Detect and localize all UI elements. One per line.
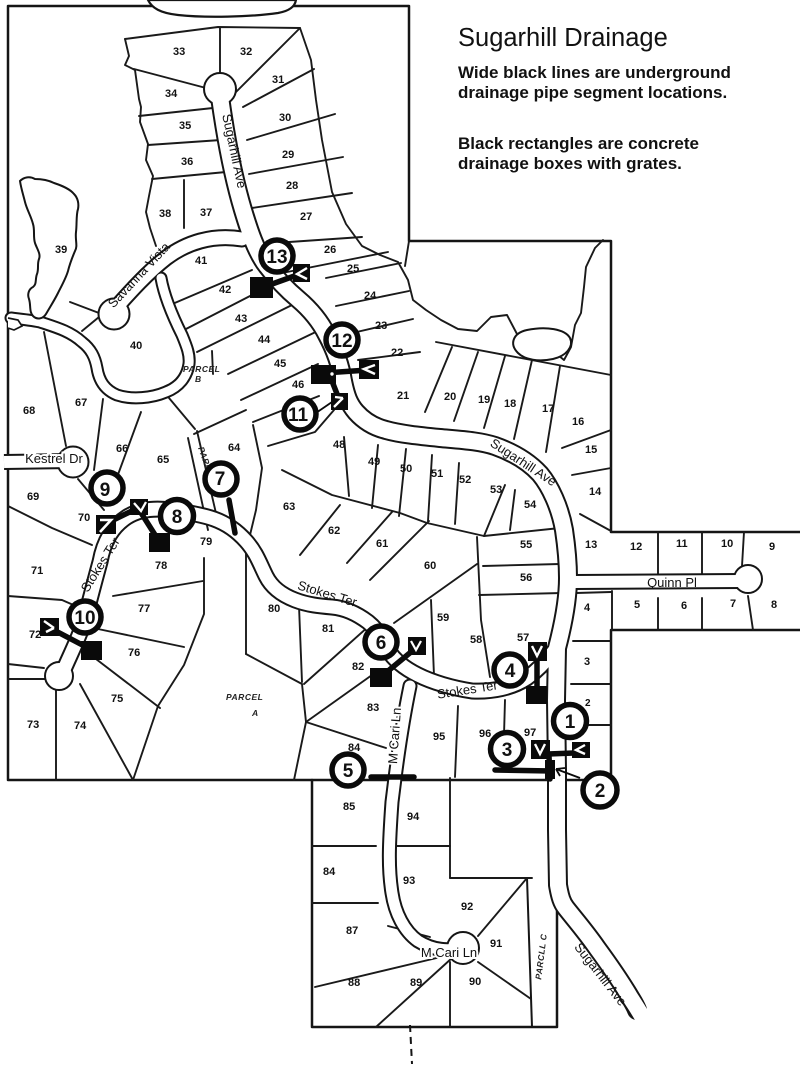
svg-text:48: 48 xyxy=(333,439,345,451)
svg-text:Wide black lines are undergrou: Wide black lines are underground xyxy=(458,63,731,82)
svg-text:85: 85 xyxy=(343,801,355,813)
svg-text:9: 9 xyxy=(100,480,111,501)
svg-text:13: 13 xyxy=(585,539,597,551)
svg-text:49: 49 xyxy=(368,456,380,468)
svg-text:76: 76 xyxy=(128,647,140,659)
svg-text:5: 5 xyxy=(343,761,354,782)
svg-text:2: 2 xyxy=(595,781,606,802)
svg-text:26: 26 xyxy=(324,244,336,256)
svg-text:6: 6 xyxy=(681,600,687,612)
svg-text:68: 68 xyxy=(23,405,35,417)
svg-text:6: 6 xyxy=(376,633,387,654)
svg-text:11: 11 xyxy=(676,538,688,550)
svg-text:84: 84 xyxy=(323,866,336,878)
svg-text:7: 7 xyxy=(215,469,226,490)
svg-text:93: 93 xyxy=(403,875,415,887)
svg-text:29: 29 xyxy=(282,149,294,161)
svg-text:25: 25 xyxy=(347,263,359,275)
svg-text:B: B xyxy=(195,374,202,384)
svg-text:73: 73 xyxy=(27,719,39,731)
svg-text:69: 69 xyxy=(27,491,39,503)
svg-text:71: 71 xyxy=(31,565,43,577)
svg-text:22: 22 xyxy=(391,347,403,359)
svg-text:83: 83 xyxy=(367,702,379,714)
svg-text:32: 32 xyxy=(240,46,252,58)
svg-text:3: 3 xyxy=(502,740,513,761)
svg-text:drainage pipe segment location: drainage pipe segment locations. xyxy=(458,83,727,102)
svg-text:90: 90 xyxy=(469,976,481,988)
svg-text:44: 44 xyxy=(258,334,271,346)
svg-text:70: 70 xyxy=(78,512,90,524)
svg-text:19: 19 xyxy=(478,394,490,406)
svg-text:60: 60 xyxy=(424,560,436,572)
svg-text:7: 7 xyxy=(730,598,736,610)
svg-text:92: 92 xyxy=(461,901,473,913)
svg-text:52: 52 xyxy=(459,474,471,486)
svg-text:Kestrel Dr: Kestrel Dr xyxy=(25,451,83,466)
svg-text:4: 4 xyxy=(584,602,591,614)
svg-text:11: 11 xyxy=(288,405,309,426)
svg-text:89: 89 xyxy=(410,977,422,989)
svg-text:Black rectangles are concrete: Black rectangles are concrete xyxy=(458,134,699,153)
svg-text:81: 81 xyxy=(322,623,334,635)
svg-text:9: 9 xyxy=(769,541,775,553)
svg-text:63: 63 xyxy=(283,501,295,513)
svg-text:24: 24 xyxy=(364,290,377,302)
svg-text:28: 28 xyxy=(286,180,298,192)
svg-text:2: 2 xyxy=(585,698,591,709)
svg-text:12: 12 xyxy=(630,541,642,553)
svg-text:drainage boxes with grates.: drainage boxes with grates. xyxy=(458,154,682,173)
svg-text:37: 37 xyxy=(200,207,212,219)
svg-text:54: 54 xyxy=(524,499,537,511)
svg-text:31: 31 xyxy=(272,74,284,86)
svg-text:8: 8 xyxy=(172,507,183,528)
svg-text:55: 55 xyxy=(520,539,532,551)
svg-text:38: 38 xyxy=(159,208,171,220)
svg-text:PARCEL: PARCEL xyxy=(183,364,220,374)
svg-text:79: 79 xyxy=(200,536,212,548)
svg-text:30: 30 xyxy=(279,112,291,124)
svg-text:59: 59 xyxy=(437,612,449,624)
svg-text:66: 66 xyxy=(116,443,128,455)
svg-text:27: 27 xyxy=(300,211,312,223)
svg-text:80: 80 xyxy=(268,603,280,615)
svg-text:13: 13 xyxy=(266,247,287,268)
svg-text:Sugarhill Drainage: Sugarhill Drainage xyxy=(458,24,668,52)
svg-text:35: 35 xyxy=(179,120,191,132)
svg-text:Quinn Pl: Quinn Pl xyxy=(647,575,697,590)
svg-text:62: 62 xyxy=(328,525,340,537)
svg-text:82: 82 xyxy=(352,661,364,673)
svg-text:3: 3 xyxy=(584,656,590,668)
svg-text:97: 97 xyxy=(524,727,536,739)
svg-text:17: 17 xyxy=(542,403,554,415)
svg-text:1: 1 xyxy=(565,712,576,733)
svg-text:40: 40 xyxy=(130,340,142,352)
svg-text:67: 67 xyxy=(75,397,87,409)
svg-text:91: 91 xyxy=(490,938,502,950)
svg-text:57: 57 xyxy=(517,632,529,644)
svg-text:12: 12 xyxy=(331,331,352,352)
svg-text:87: 87 xyxy=(346,925,358,937)
svg-text:58: 58 xyxy=(470,634,482,646)
svg-text:34: 34 xyxy=(165,88,178,100)
svg-text:46: 46 xyxy=(292,379,304,391)
svg-text:45: 45 xyxy=(274,358,286,370)
svg-text:78: 78 xyxy=(155,560,167,572)
svg-text:5: 5 xyxy=(634,599,640,611)
svg-text:15: 15 xyxy=(585,444,597,456)
svg-text:88: 88 xyxy=(348,977,360,989)
svg-text:PARCEL: PARCEL xyxy=(226,692,263,702)
svg-text:A: A xyxy=(251,708,259,718)
svg-text:64: 64 xyxy=(228,442,241,454)
svg-text:16: 16 xyxy=(572,416,584,428)
svg-text:77: 77 xyxy=(138,603,150,615)
svg-text:41: 41 xyxy=(195,255,207,267)
svg-text:23: 23 xyxy=(375,320,387,332)
svg-text:94: 94 xyxy=(407,811,420,823)
svg-text:43: 43 xyxy=(235,313,247,325)
svg-text:51: 51 xyxy=(431,468,443,480)
svg-text:75: 75 xyxy=(111,693,123,705)
svg-text:36: 36 xyxy=(181,156,193,168)
svg-text:96: 96 xyxy=(479,728,491,740)
svg-text:M Cari Ln: M Cari Ln xyxy=(421,945,477,960)
svg-text:74: 74 xyxy=(74,720,87,732)
svg-text:95: 95 xyxy=(433,731,445,743)
svg-text:65: 65 xyxy=(157,454,169,466)
svg-text:72: 72 xyxy=(29,629,41,641)
svg-text:53: 53 xyxy=(490,484,502,496)
svg-text:14: 14 xyxy=(589,486,602,498)
svg-text:4: 4 xyxy=(505,661,516,682)
svg-text:33: 33 xyxy=(173,46,185,58)
svg-text:18: 18 xyxy=(504,398,516,410)
svg-text:10: 10 xyxy=(721,538,733,550)
svg-text:61: 61 xyxy=(376,538,388,550)
svg-text:56: 56 xyxy=(520,572,532,584)
svg-text:39: 39 xyxy=(55,244,67,256)
svg-text:10: 10 xyxy=(74,608,95,629)
svg-text:42: 42 xyxy=(219,284,231,296)
svg-text:21: 21 xyxy=(397,390,409,402)
svg-text:8: 8 xyxy=(771,599,777,611)
svg-text:50: 50 xyxy=(400,463,412,475)
svg-text:20: 20 xyxy=(444,391,456,403)
